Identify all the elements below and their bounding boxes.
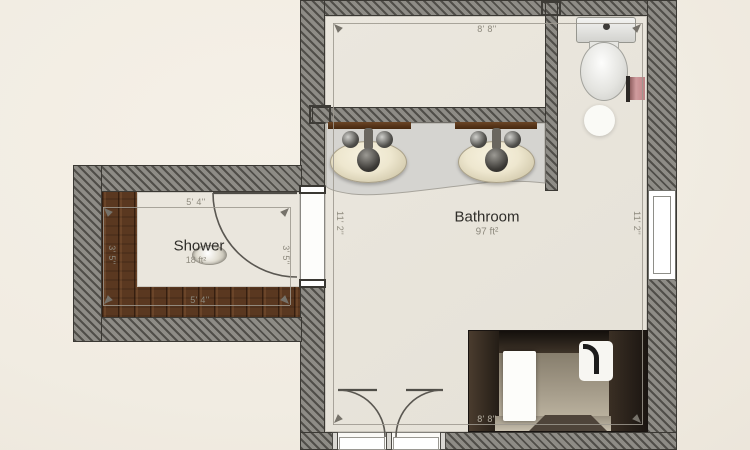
window-sash bbox=[653, 196, 671, 274]
dim-line-bathroom-bottom bbox=[333, 424, 642, 425]
sink-left-faucet-stem bbox=[364, 128, 373, 150]
sink-right-handle-hot bbox=[504, 131, 521, 148]
dim-line-bathroom-left bbox=[333, 23, 334, 425]
sink-right-handle-cold bbox=[470, 131, 487, 148]
sink-right-faucet bbox=[485, 148, 508, 172]
wall-top[interactable] bbox=[300, 0, 677, 16]
shower-wall-left[interactable] bbox=[73, 165, 102, 342]
wall-joint-cap-top bbox=[541, 1, 561, 16]
dim-line-shower-left bbox=[103, 207, 104, 305]
sink-left-handle-hot bbox=[376, 131, 393, 148]
dim-label-bathroom-top: 8' 8'' bbox=[477, 24, 496, 34]
shower-wall-top[interactable] bbox=[73, 165, 302, 192]
dim-label-bathroom-bottom: 8' 8'' bbox=[477, 414, 496, 424]
shower-door-jamb-top bbox=[299, 185, 326, 194]
floor-plan-canvas: 8' 8'' 8' 8'' 11' 2'' 11' 2'' 5' 4'' 5' … bbox=[0, 0, 750, 450]
bathtub-mat bbox=[503, 351, 536, 421]
shower-wall-bottom[interactable] bbox=[73, 317, 302, 342]
dim-label-bathroom-left: 11' 2'' bbox=[335, 211, 345, 235]
ceiling-light[interactable] bbox=[584, 105, 615, 136]
shower-door-frame[interactable] bbox=[300, 190, 325, 287]
sink-left-faucet bbox=[357, 148, 380, 172]
shower-label[interactable]: Shower bbox=[174, 238, 225, 255]
toilet-tank[interactable] bbox=[576, 17, 636, 43]
sink-left-handle-cold bbox=[342, 131, 359, 148]
double-door-panel-right[interactable] bbox=[393, 437, 439, 450]
wall-inner-horizontal[interactable] bbox=[312, 107, 548, 123]
dim-label-shower-bottom: 5' 4'' bbox=[190, 295, 209, 305]
dim-line-bathroom-right bbox=[642, 23, 643, 425]
window[interactable] bbox=[648, 190, 676, 280]
dim-label-shower-top: 5' 4'' bbox=[186, 197, 205, 207]
dim-label-shower-right: 3' 5'' bbox=[281, 245, 291, 264]
double-door-panel-left[interactable] bbox=[339, 437, 385, 450]
toilet-bowl[interactable] bbox=[580, 42, 628, 101]
toilet-flush-button bbox=[603, 23, 610, 30]
wall-inner-vertical[interactable] bbox=[545, 0, 558, 191]
double-door-jamb-right bbox=[440, 432, 446, 450]
shower-area-label: 18 ft² bbox=[186, 255, 207, 265]
double-door-jamb-left bbox=[332, 432, 338, 450]
dim-line-shower-bottom bbox=[103, 305, 290, 306]
dim-label-shower-left: 3' 5'' bbox=[107, 245, 117, 264]
dim-line-shower-top bbox=[103, 207, 290, 208]
double-door-jamb-center bbox=[386, 432, 392, 450]
shower-door-jamb-bottom bbox=[299, 279, 326, 288]
dim-label-bathroom-right: 11' 2'' bbox=[632, 211, 642, 235]
bathroom-label[interactable]: Bathroom bbox=[454, 209, 519, 226]
sink-right-faucet-stem bbox=[492, 128, 501, 150]
bathroom-area-label: 97 ft² bbox=[476, 227, 499, 238]
